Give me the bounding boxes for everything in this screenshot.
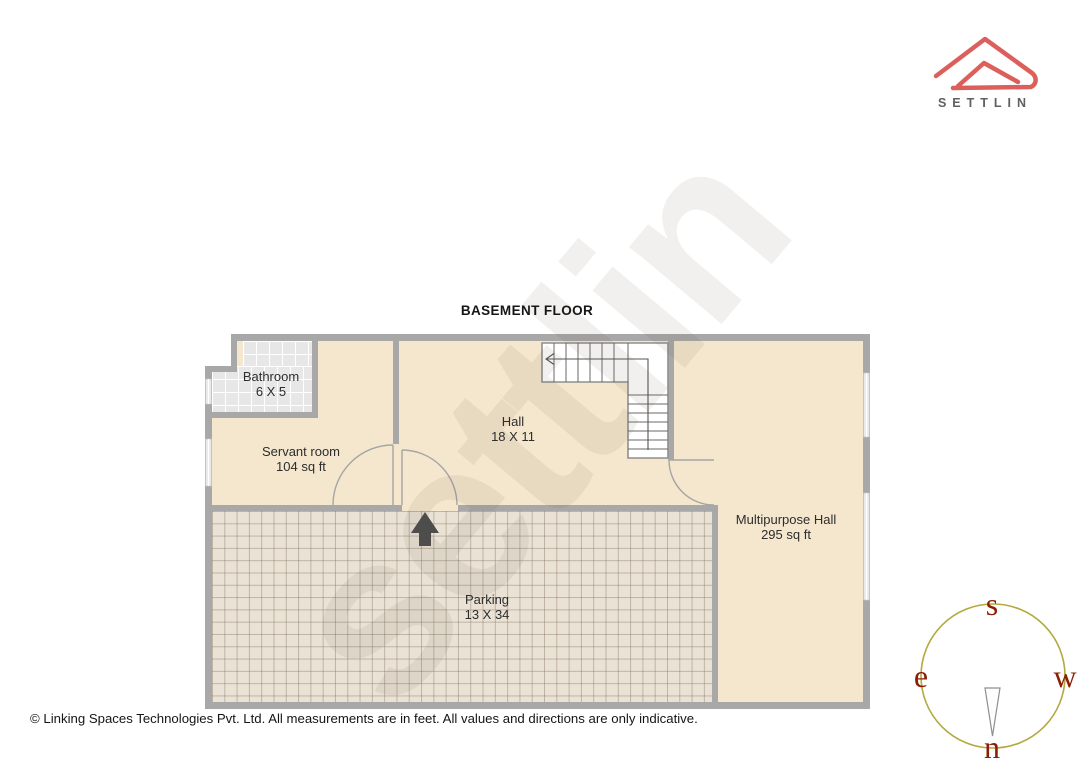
room-name: Multipurpose Hall <box>736 512 836 527</box>
room-dims: 6 X 5 <box>243 384 299 399</box>
label-servant-room: Servant room 104 sq ft <box>262 444 340 474</box>
room-name: Parking <box>465 592 510 607</box>
label-hall: Hall 18 X 11 <box>491 414 535 444</box>
label-parking: Parking 13 X 34 <box>465 592 510 622</box>
compass-north: n <box>984 729 1000 764</box>
room-name: Bathroom <box>243 369 299 384</box>
room-dims: 295 sq ft <box>736 527 836 542</box>
window-icon <box>206 373 870 600</box>
entry-arrow-icon <box>411 512 439 546</box>
room-name: Hall <box>491 414 535 429</box>
page-title: BASEMENT FLOOR <box>327 303 727 318</box>
copyright-note: © Linking Spaces Technologies Pvt. Ltd. … <box>30 711 698 726</box>
floor-plan-page: settlin SETTLIN BASEMENT FLOOR <box>0 0 1080 764</box>
label-multipurpose-hall: Multipurpose Hall 295 sq ft <box>736 512 836 542</box>
room-dims: 18 X 11 <box>491 429 535 444</box>
compass-east: e <box>914 658 928 694</box>
room-name: Servant room <box>262 444 340 459</box>
compass-icon: s e w n <box>905 586 1080 764</box>
room-dims: 104 sq ft <box>262 459 340 474</box>
brand-name: SETTLIN <box>920 96 1050 110</box>
staircase <box>542 343 668 458</box>
room-dims: 13 X 34 <box>465 607 510 622</box>
compass-west: w <box>1053 658 1076 694</box>
compass-south: s <box>986 586 998 622</box>
label-bathroom: Bathroom 6 X 5 <box>243 369 299 399</box>
